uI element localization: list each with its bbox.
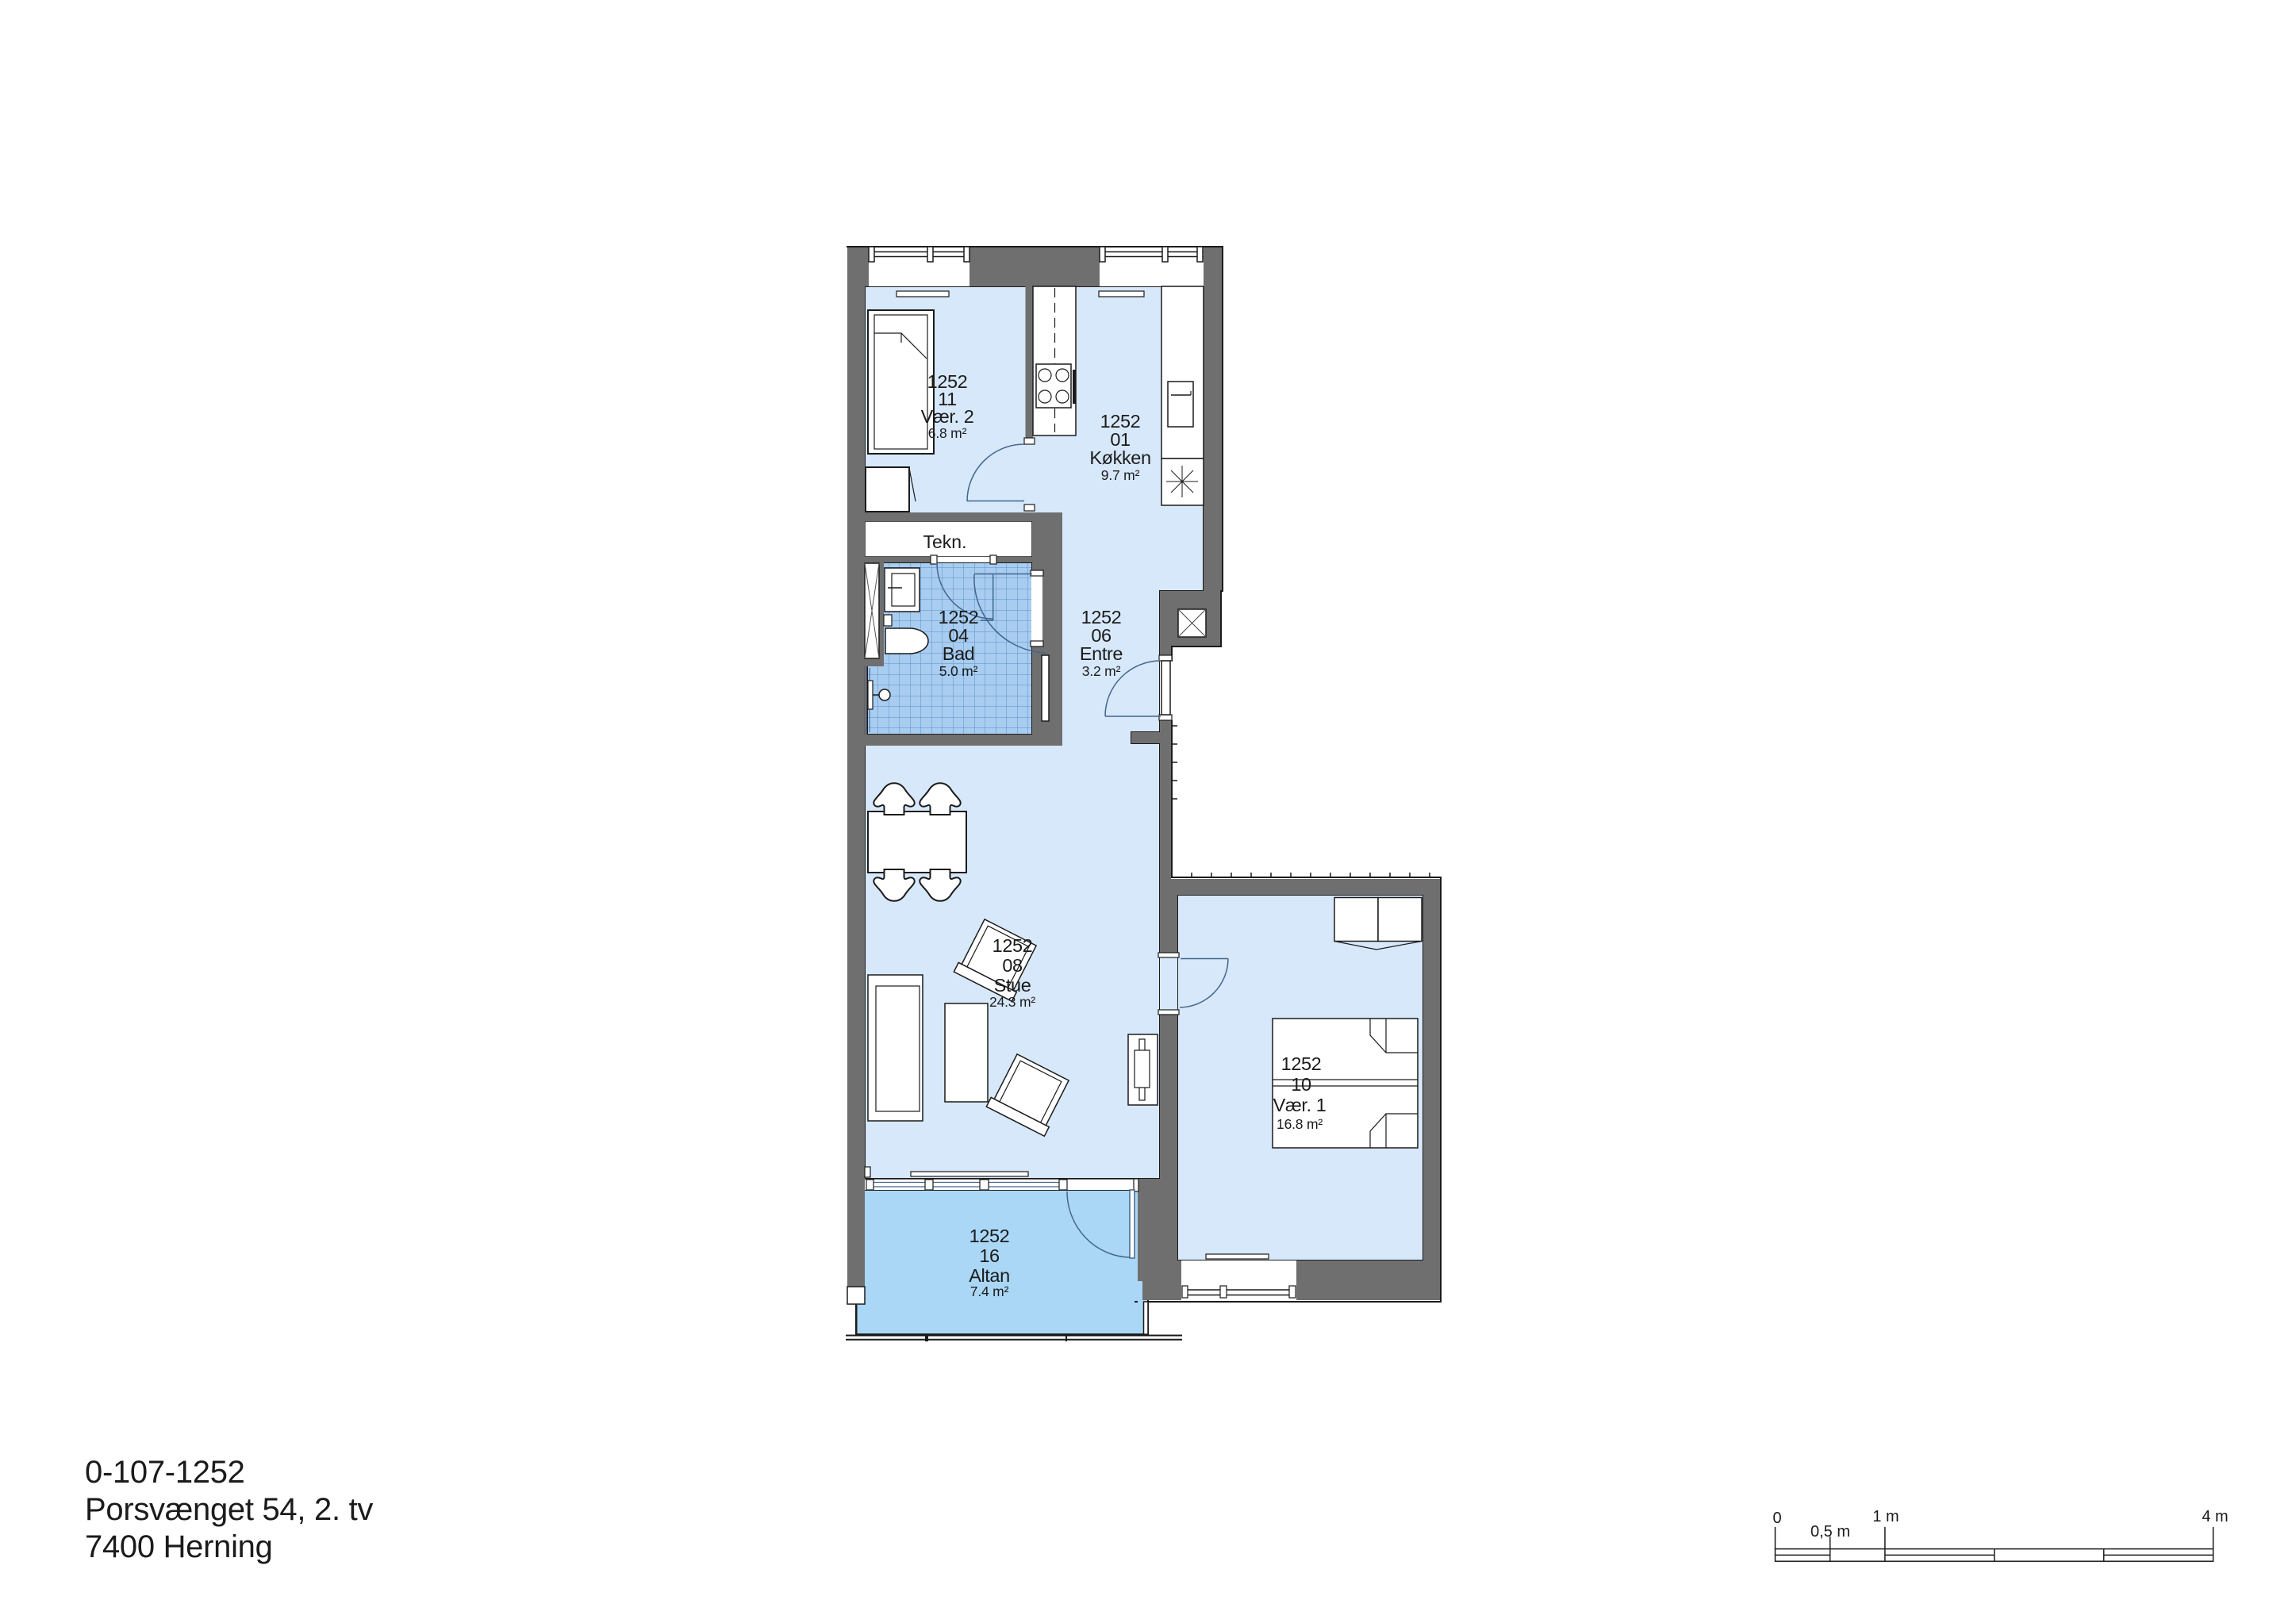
svg-text:4 m: 4 m: [2202, 1508, 2228, 1525]
svg-text:Stue: Stue: [994, 975, 1031, 996]
svg-text:1 m: 1 m: [1872, 1508, 1899, 1525]
svg-text:Porsvænget 54, 2. tv: Porsvænget 54, 2. tv: [85, 1492, 373, 1527]
svg-text:Entre: Entre: [1080, 643, 1123, 664]
svg-text:5.0 m²: 5.0 m²: [939, 663, 978, 679]
svg-text:7.4 m²: 7.4 m²: [970, 1283, 1009, 1299]
svg-text:Vær. 1: Vær. 1: [1273, 1095, 1327, 1115]
svg-text:1252: 1252: [1281, 1053, 1322, 1074]
svg-text:Bad: Bad: [943, 643, 975, 664]
svg-text:Tekn.: Tekn.: [923, 531, 967, 552]
svg-text:16.8 m²: 16.8 m²: [1277, 1116, 1323, 1132]
svg-text:1252: 1252: [993, 935, 1033, 956]
svg-text:Vær. 2: Vær. 2: [921, 406, 974, 427]
svg-text:7400 Herning: 7400 Herning: [85, 1529, 273, 1564]
svg-text:16: 16: [979, 1245, 1000, 1266]
svg-text:Køkken: Køkken: [1089, 447, 1150, 468]
svg-text:9.7 m²: 9.7 m²: [1101, 467, 1140, 483]
svg-text:08: 08: [1002, 955, 1023, 976]
svg-text:24.3 m²: 24.3 m²: [989, 994, 1035, 1010]
svg-text:3.2 m²: 3.2 m²: [1082, 663, 1121, 679]
svg-text:10: 10: [1291, 1074, 1311, 1095]
svg-text:0: 0: [1772, 1510, 1781, 1527]
svg-text:0-107-1252: 0-107-1252: [85, 1455, 245, 1490]
svg-text:1252: 1252: [969, 1226, 1010, 1246]
svg-text:6.8 m²: 6.8 m²: [928, 425, 967, 441]
